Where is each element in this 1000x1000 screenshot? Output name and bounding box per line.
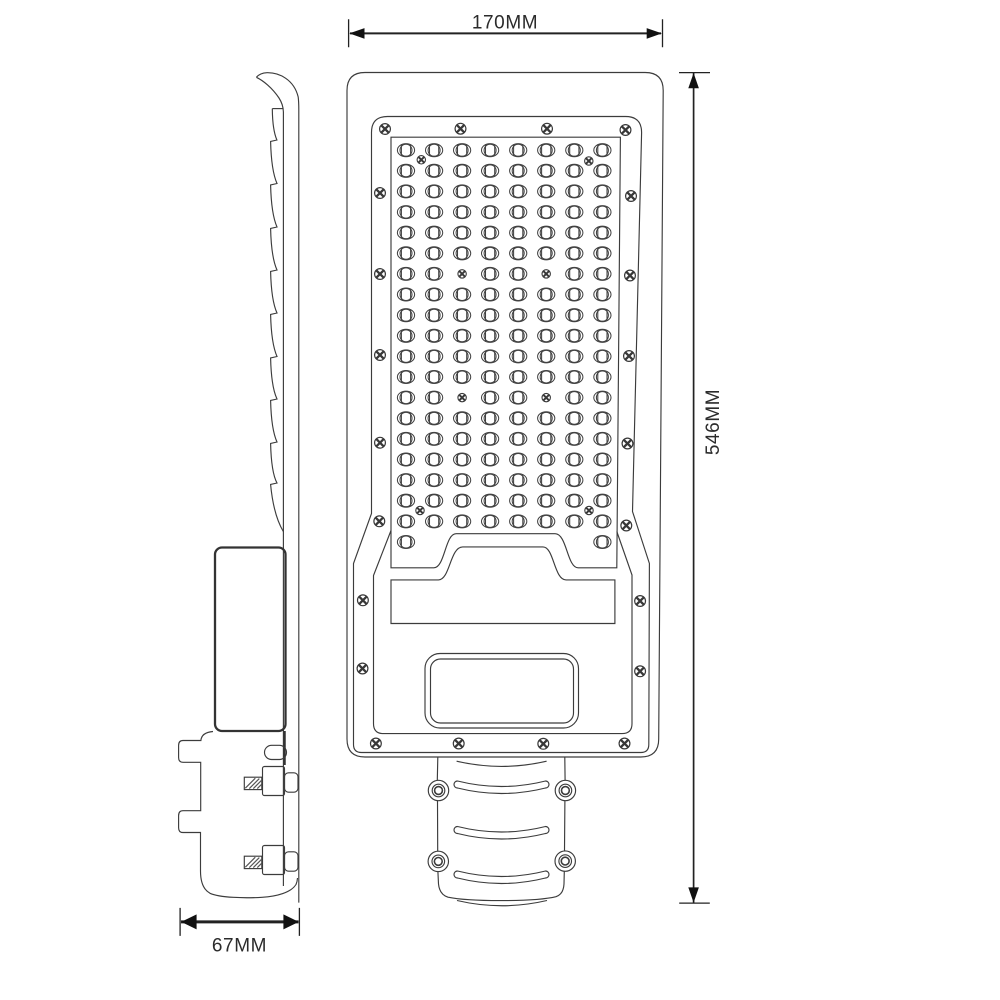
svg-text:546MM: 546MM xyxy=(703,389,724,455)
svg-text:67MM: 67MM xyxy=(212,935,267,956)
svg-text:170MM: 170MM xyxy=(472,13,538,34)
